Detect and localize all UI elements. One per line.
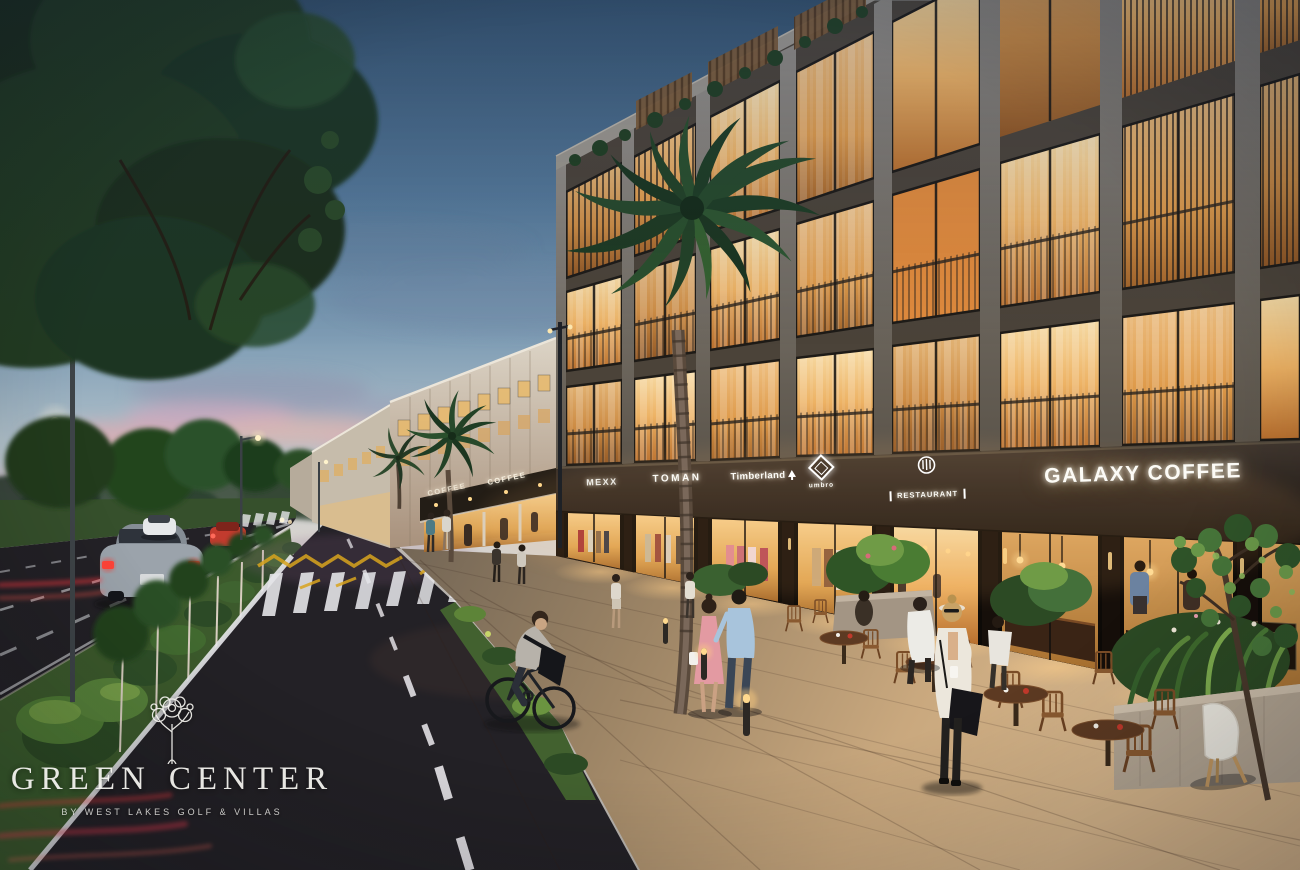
scene-artwork: [0, 0, 1300, 870]
street-scene-rendering: MEXX TOMAN Timberland umbro RESTAURANT G…: [0, 0, 1300, 870]
vignette: [0, 0, 1300, 870]
